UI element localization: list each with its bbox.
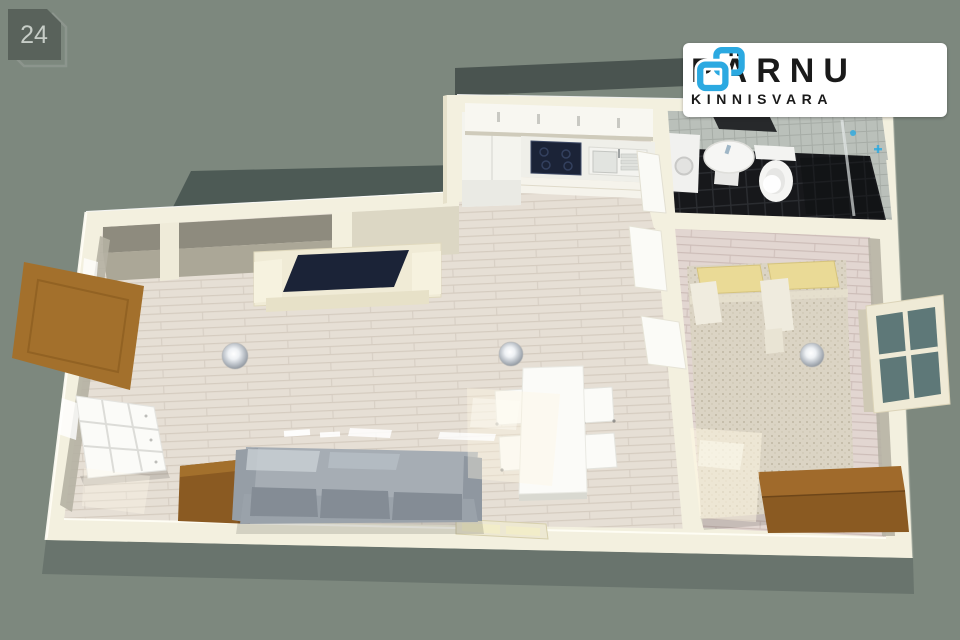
kitchen-upper-cabinets [465, 103, 653, 141]
photo-index-badge: 24 [0, 0, 80, 80]
bedroom-door-panel [641, 316, 686, 369]
bathroom [660, 108, 892, 220]
tv-screen [283, 250, 409, 292]
logo-icon [693, 43, 747, 97]
ceiling-lamp [499, 342, 523, 366]
ceiling-lamp [222, 343, 248, 369]
ceiling-lamp [800, 343, 824, 367]
kitchen-cooktop [531, 141, 581, 175]
floorplan-photo: PÄRNU KINNISVARA 24 [0, 0, 960, 640]
bedroom-door-panel [629, 226, 667, 291]
bedroom-window [858, 295, 950, 413]
tv-console [254, 243, 441, 312]
badge-number: 24 [20, 21, 48, 49]
sofa [232, 447, 484, 534]
chest-of-drawers [758, 466, 909, 533]
parnu-kinnisvara-logo: PÄRNU KINNISVARA [683, 43, 947, 117]
